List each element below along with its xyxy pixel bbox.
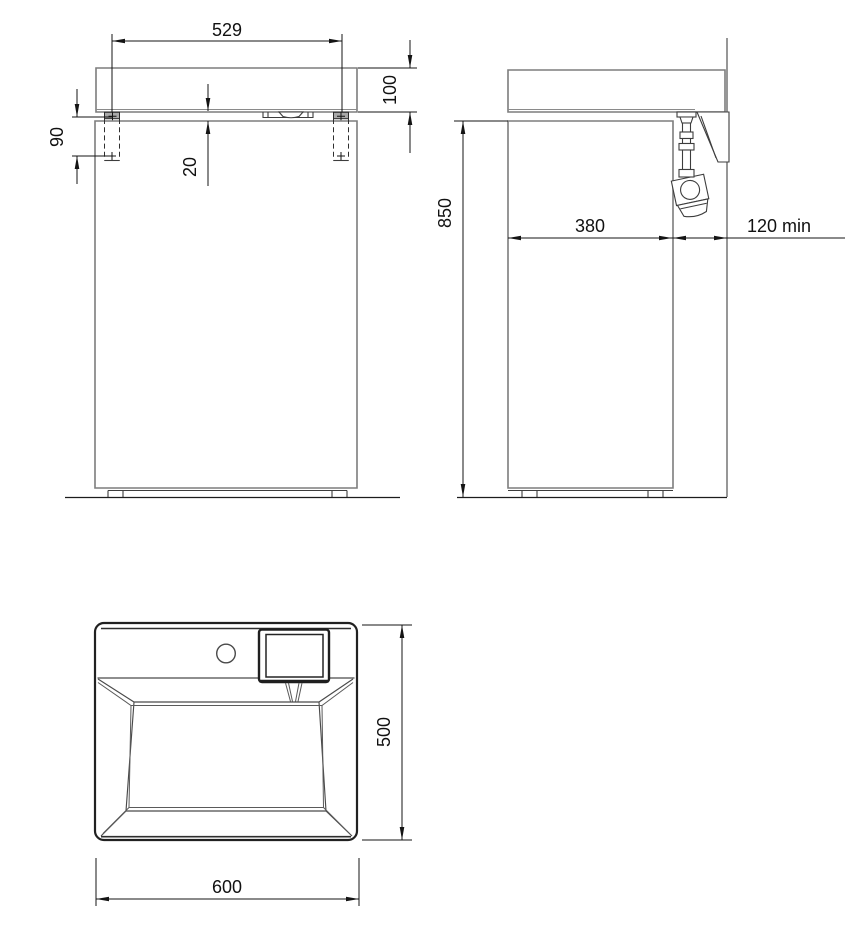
dim-529-label: 529 xyxy=(212,20,242,40)
top-view: 500 600 xyxy=(95,623,412,906)
washbasin-technical-drawing: 529 100 90 20 xyxy=(0,0,856,942)
siphon-nut-3 xyxy=(679,170,694,178)
dim-90-label: 90 xyxy=(47,127,67,147)
dim-120-min: 120 min xyxy=(673,216,811,240)
siphon-nut-2 xyxy=(679,144,694,151)
dim-850-label: 850 xyxy=(435,198,455,228)
overflow-box xyxy=(259,630,329,683)
fixing-cross-marks-right xyxy=(337,112,345,160)
basin-front-outline xyxy=(96,68,357,112)
dim-100-label: 100 xyxy=(380,75,400,105)
overflow-channel xyxy=(286,683,303,702)
cabinet-front-feet xyxy=(108,491,347,498)
fixing-bracket-left xyxy=(105,112,120,160)
siphon-bottle xyxy=(671,174,711,219)
technical-drawing-sheet: 529 100 90 20 xyxy=(0,0,856,942)
siphon-flange xyxy=(677,112,696,117)
cabinet-side-outline xyxy=(508,121,673,488)
dim-600: 600 xyxy=(96,858,359,906)
cabinet-side-feet xyxy=(508,491,673,498)
basin-side-outline xyxy=(508,70,725,112)
wall-bracket xyxy=(697,112,729,162)
side-view: 850 380 120 min xyxy=(435,38,845,498)
dim-90: 90 xyxy=(47,89,113,184)
dim-120-min-label: 120 min xyxy=(747,216,811,236)
dim-20-label: 20 xyxy=(180,157,200,177)
fixing-cross-marks-left xyxy=(108,112,117,160)
siphon-nut-1 xyxy=(680,132,693,139)
dim-529: 529 xyxy=(112,20,342,112)
fixing-bracket-right xyxy=(334,112,349,160)
dim-100: 100 xyxy=(358,40,417,153)
cabinet-front-outline xyxy=(95,121,357,488)
drain-front xyxy=(263,112,313,118)
dim-380-label: 380 xyxy=(575,216,605,236)
dim-600-label: 600 xyxy=(212,877,242,897)
dim-850: 850 xyxy=(435,121,508,497)
dim-20: 20 xyxy=(180,84,210,186)
faucet-hole xyxy=(217,644,236,663)
bowl-outline xyxy=(98,679,353,836)
front-view: 529 100 90 20 xyxy=(47,20,417,498)
dim-500: 500 xyxy=(362,625,412,840)
siphon-taper xyxy=(680,117,693,123)
dim-500-label: 500 xyxy=(374,717,394,747)
